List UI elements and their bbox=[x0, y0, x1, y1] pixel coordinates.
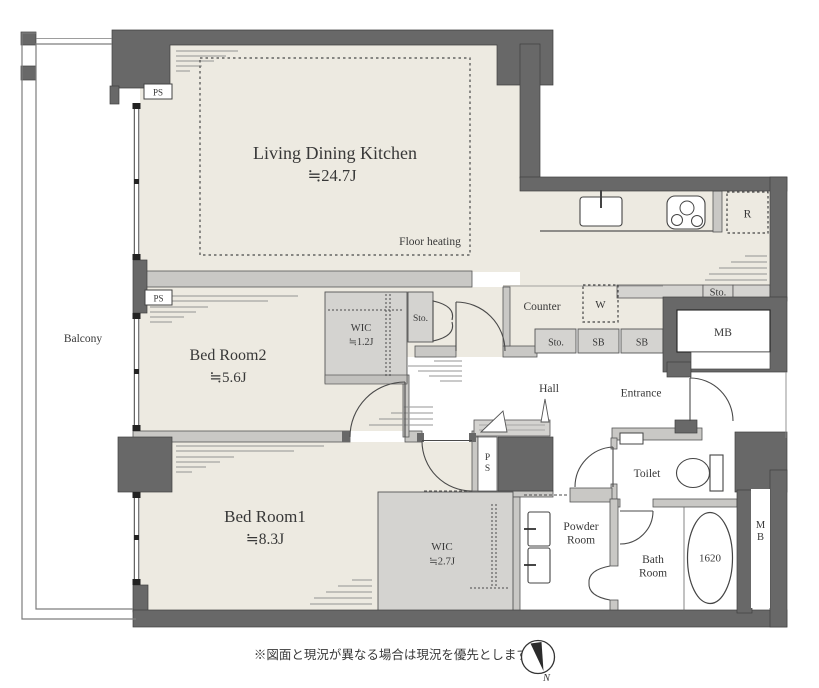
shaft-block bbox=[498, 437, 553, 491]
bedroom1-size: ≒8.3J bbox=[246, 531, 284, 548]
ps-label-top: PS bbox=[153, 88, 163, 98]
bath-room-label2: Room bbox=[639, 568, 667, 580]
shoe-box-label: SB bbox=[636, 338, 649, 349]
paper-holder-icon bbox=[620, 433, 643, 444]
hall-label: Hall bbox=[539, 383, 559, 395]
meter-box-side bbox=[751, 489, 770, 608]
pipe-space-vertical-label: PS bbox=[483, 453, 493, 475]
wic-small-label: WIC bbox=[351, 323, 371, 334]
entrance-label: Entrance bbox=[621, 388, 662, 400]
compass-icon: N bbox=[522, 641, 555, 685]
windows bbox=[133, 103, 141, 585]
balcony-outline bbox=[22, 33, 136, 619]
ps-label-mid: PS bbox=[153, 294, 163, 304]
disclaimer-note: ※図面と現況が異なる場合は現況を優先とします。 bbox=[254, 647, 540, 662]
washer-label: W bbox=[595, 299, 606, 311]
refrigerator-label: R bbox=[744, 209, 752, 221]
floor-heating-label: Floor heating bbox=[399, 236, 461, 248]
wic-small-size: ≒1.2J bbox=[349, 337, 374, 348]
ldk-label: Living Dining Kitchen bbox=[253, 143, 417, 163]
toilet-label: Toilet bbox=[634, 468, 661, 480]
bedroom1-label: Bed Room1 bbox=[224, 507, 306, 526]
bath-room-label: Bath bbox=[642, 554, 664, 566]
powder-room-label: Powder bbox=[563, 521, 598, 533]
floor-plan-canvas: Living Dining Kitchen ≒24.7J Floor heati… bbox=[0, 0, 819, 688]
bedroom2-label: Bed Room2 bbox=[190, 347, 267, 364]
footer: ※図面と現況が異なる場合は現況を優先とします。 N bbox=[254, 641, 555, 685]
tub-size-label: 1620 bbox=[699, 553, 722, 565]
counter-label: Counter bbox=[523, 301, 560, 313]
balcony-label: Balcony bbox=[64, 333, 103, 345]
floor-plan: Living Dining Kitchen ≒24.7J Floor heati… bbox=[0, 0, 819, 688]
wic-large-label: WIC bbox=[431, 541, 452, 553]
meter-box-label: MB bbox=[714, 327, 732, 339]
meter-box-vertical-label: MB bbox=[755, 520, 766, 544]
wic-large-size: ≒2.7J bbox=[429, 557, 455, 568]
storage-label-bedroom2: Sto. bbox=[413, 314, 428, 324]
powder-room-label2: Room bbox=[567, 535, 595, 547]
ldk-size: ≒24.7J bbox=[307, 166, 357, 185]
storage-label-row: Sto. bbox=[548, 338, 564, 349]
toilet-icon bbox=[677, 459, 710, 488]
storage-label-kitchen: Sto. bbox=[710, 288, 727, 299]
bedroom2-size: ≒5.6J bbox=[209, 370, 246, 386]
compass-north-label: N bbox=[542, 673, 551, 684]
shoe-box-label: SB bbox=[592, 338, 605, 349]
